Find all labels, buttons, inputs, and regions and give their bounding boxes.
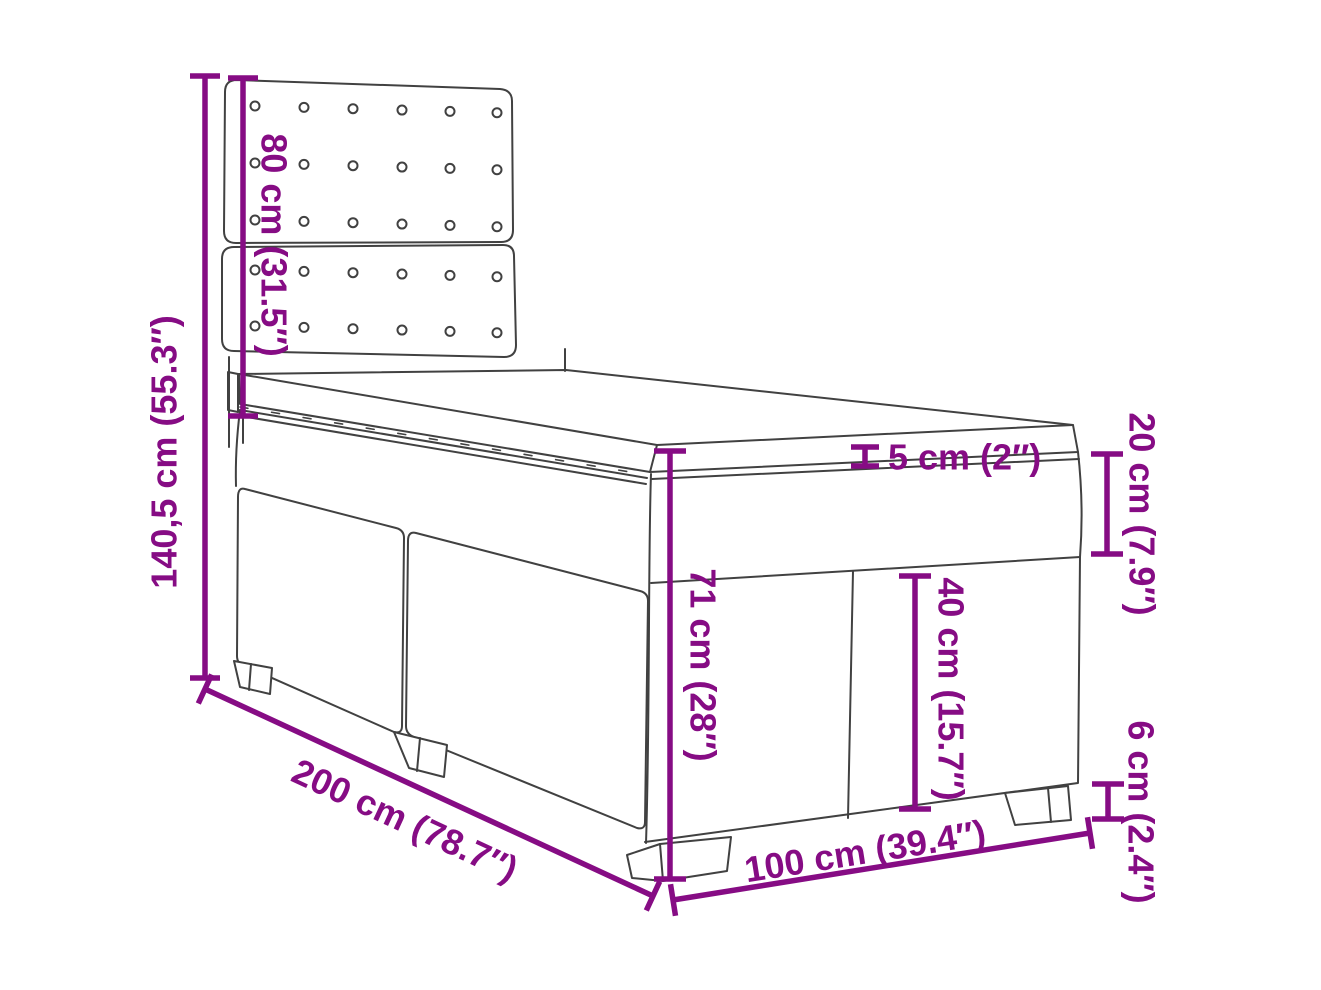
headboard-button	[300, 160, 309, 169]
leg-rear-left	[234, 661, 272, 694]
headboard-button	[300, 323, 309, 332]
headboard-button	[398, 106, 407, 115]
headboard-button	[398, 163, 407, 172]
base-side-panel-left	[237, 489, 404, 733]
mattress-piping-top	[240, 410, 647, 478]
headboard-button	[300, 217, 309, 226]
base-foot-seam	[848, 571, 853, 818]
mattress-piping-bottom	[241, 416, 646, 484]
dimension-base-height-label: 40 cm (15.7″)	[931, 577, 972, 800]
dimension-bed-length: 200 cm (78.7″)	[198, 675, 659, 911]
mattress-piping-stitches	[240, 407, 648, 475]
dimension-base-height-line	[899, 576, 931, 809]
dimension-mattress-height: 20 cm (7.9″)	[1091, 412, 1163, 615]
dimension-headboard-height-label: 80 cm (31.5″)	[254, 133, 295, 356]
headboard-button	[446, 271, 455, 280]
headboard-button	[349, 161, 358, 170]
mattress-right-edge	[1078, 452, 1082, 557]
bed-dimension-diagram: 140,5 cm (55.3″) 80 cm (31.5″) 200 cm (7…	[0, 0, 1321, 990]
headboard-button	[349, 218, 358, 227]
headboard-button	[398, 220, 407, 229]
dimension-leg-height: 6 cm (2.4″)	[1092, 720, 1162, 903]
leg-front-right	[1005, 786, 1071, 825]
headboard-button	[300, 267, 309, 276]
headboard-button	[251, 102, 260, 111]
headboard-button	[349, 268, 358, 277]
leg-front-corner	[627, 837, 731, 881]
dimension-total-height-line	[190, 76, 220, 678]
headboard-button	[493, 165, 502, 174]
diagram-canvas: 140,5 cm (55.3″) 80 cm (31.5″) 200 cm (7…	[0, 0, 1321, 990]
dimension-bed-length-line	[198, 675, 659, 911]
dimension-annotations: 140,5 cm (55.3″) 80 cm (31.5″) 200 cm (7…	[144, 76, 1163, 916]
headboard-button	[493, 328, 502, 337]
dimension-side-height: 71 cm (28″)	[654, 451, 724, 879]
dimension-leg-height-line	[1092, 784, 1124, 819]
dimension-leg-height-label: 6 cm (2.4″)	[1121, 720, 1162, 903]
dimension-side-height-line	[654, 451, 686, 879]
dimension-total-height-label: 140,5 cm (55.3″)	[144, 315, 185, 588]
headboard-button	[493, 108, 502, 117]
headboard-button	[349, 324, 358, 333]
dimension-mattress-height-label: 20 cm (7.9″)	[1122, 412, 1163, 615]
headboard-button	[398, 270, 407, 279]
dimension-bed-width: 100 cm (39.4″)	[671, 812, 1093, 916]
headboard-posts	[228, 349, 565, 447]
base-side-panel-right	[406, 533, 648, 829]
headboard-button	[493, 272, 502, 281]
headboard-button	[398, 326, 407, 335]
dimension-topper-height: 5 cm (2″)	[851, 437, 1041, 478]
dimension-topper-height-label: 5 cm (2″)	[888, 437, 1041, 478]
headboard-button	[446, 221, 455, 230]
headboard-button	[493, 222, 502, 231]
dimension-mattress-height-line	[1091, 454, 1123, 554]
headboard-button	[446, 164, 455, 173]
headboard-button	[446, 327, 455, 336]
headboard-button	[300, 103, 309, 112]
dimension-side-height-label: 71 cm (28″)	[683, 568, 724, 761]
headboard-button	[349, 104, 358, 113]
headboard-button	[446, 107, 455, 116]
dimension-base-height: 40 cm (15.7″)	[899, 576, 972, 809]
mattress-left-edge	[236, 410, 240, 486]
dimension-total-height: 140,5 cm (55.3″)	[144, 76, 221, 678]
